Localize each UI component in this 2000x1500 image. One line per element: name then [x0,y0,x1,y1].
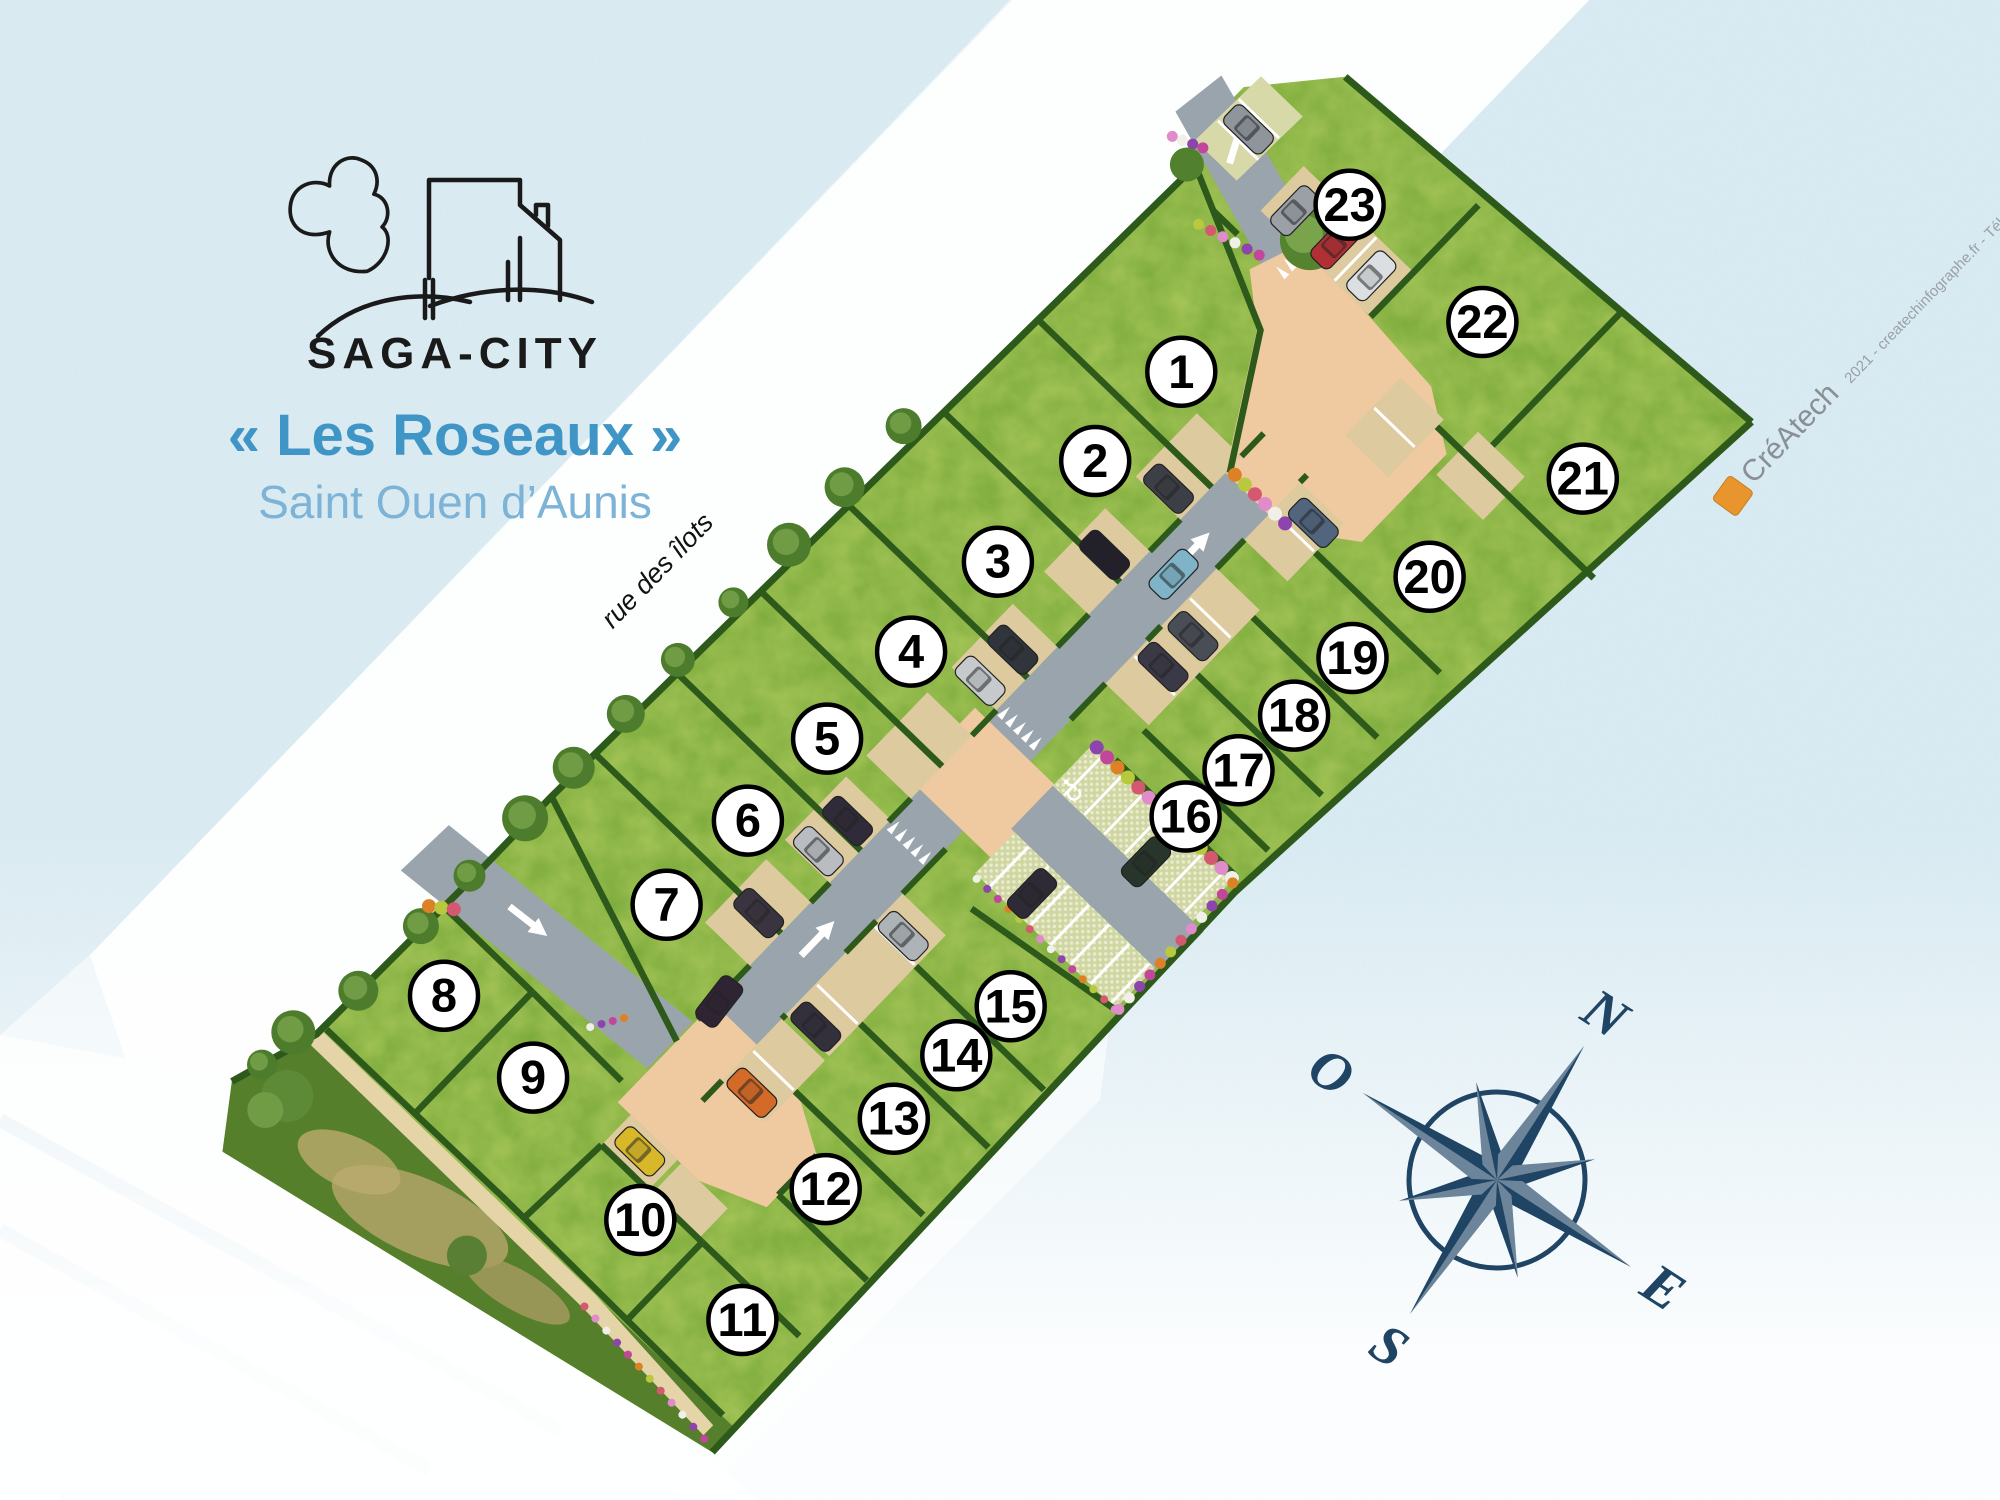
svg-text:6: 6 [735,794,761,847]
svg-text:17: 17 [1212,743,1264,796]
svg-text:3: 3 [985,535,1011,588]
svg-text:2: 2 [1082,434,1108,487]
svg-text:« Les Roseaux »: « Les Roseaux » [228,403,683,468]
svg-text:9: 9 [520,1051,546,1104]
svg-text:18: 18 [1268,689,1320,742]
svg-text:16: 16 [1159,790,1211,843]
svg-text:8: 8 [431,969,457,1022]
svg-text:5: 5 [814,712,840,765]
svg-text:12: 12 [800,1162,852,1215]
svg-text:11: 11 [718,1293,768,1346]
svg-text:22: 22 [1456,295,1508,348]
svg-text:10: 10 [614,1193,666,1246]
svg-text:7: 7 [654,878,680,931]
svg-text:21: 21 [1557,452,1609,505]
svg-text:Saint Ouen d’Aunis: Saint Ouen d’Aunis [258,476,652,528]
svg-text:20: 20 [1403,550,1455,603]
svg-text:1: 1 [1168,345,1194,398]
svg-text:13: 13 [868,1092,920,1145]
svg-text:4: 4 [898,625,924,678]
svg-text:19: 19 [1326,631,1378,684]
svg-text:SAGA-CITY: SAGA-CITY [307,329,603,378]
svg-text:14: 14 [930,1028,982,1081]
svg-text:15: 15 [985,979,1037,1032]
svg-text:23: 23 [1323,178,1375,231]
